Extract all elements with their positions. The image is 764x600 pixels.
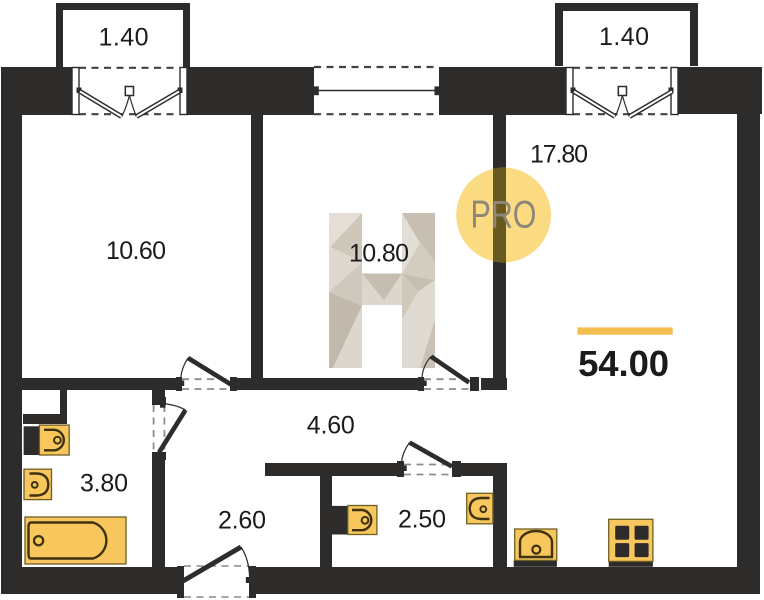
- svg-text:10.60: 10.60: [106, 237, 166, 265]
- svg-text:1.40: 1.40: [99, 24, 149, 52]
- svg-text:2.50: 2.50: [398, 506, 446, 534]
- svg-text:PRO: PRO: [471, 194, 537, 237]
- svg-text:1.40: 1.40: [599, 23, 649, 51]
- svg-text:10.80: 10.80: [349, 240, 409, 268]
- svg-text:4.60: 4.60: [307, 412, 355, 440]
- svg-text:17.80: 17.80: [530, 141, 588, 169]
- svg-text:54.00: 54.00: [578, 343, 669, 384]
- svg-text:3.80: 3.80: [80, 470, 128, 498]
- svg-text:2.60: 2.60: [218, 507, 266, 535]
